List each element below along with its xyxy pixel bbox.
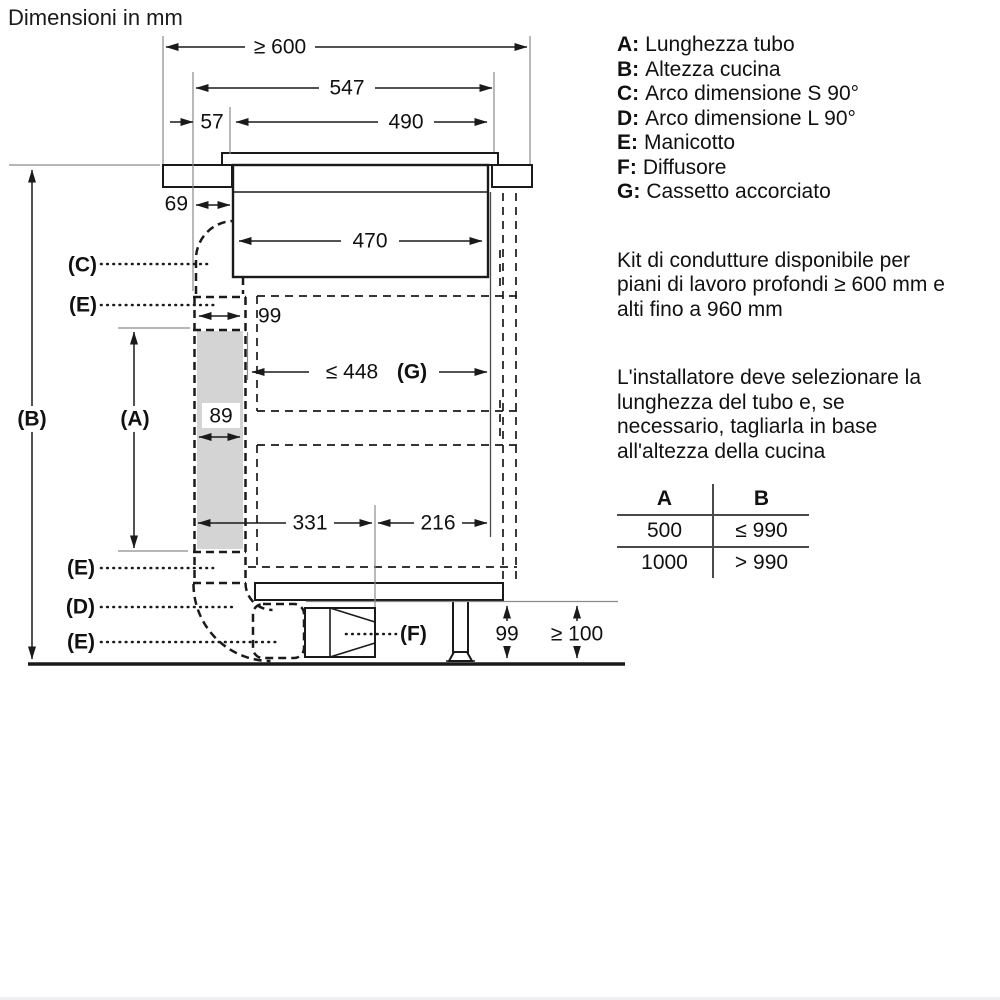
legend-item-e: E:Manicotto (617, 131, 982, 156)
dim-worktop-min-depth: ≥ 600 (254, 36, 306, 59)
legend-item-d: D:Arco dimensione L 90° (617, 107, 982, 132)
right-duct-channel (500, 193, 516, 583)
dim-duct-front-gap: 69 (165, 193, 188, 216)
dim-hob-inner-width: 470 (352, 230, 387, 253)
dim-front-offset: 57 (200, 111, 223, 134)
duct-tube (193, 297, 246, 583)
cabinet-bottom-shelf (255, 583, 503, 600)
dim-plinth-min: ≥ 100 (551, 623, 603, 646)
table-header-row: A B (617, 484, 809, 515)
note-installer: L'installatore deve selezionare la lungh… (617, 366, 982, 464)
part-label-e-bottom: (E) (67, 631, 95, 654)
part-label-a: (A) (120, 408, 149, 431)
dim-sleeve-top-width: 99 (258, 305, 281, 328)
dim-diffuser-height: 99 (495, 623, 518, 646)
table-row: 500 ≤ 990 (617, 515, 809, 547)
dim-hob-body-width: 490 (388, 111, 423, 134)
cabinet-leg (446, 600, 475, 661)
legend-item-g: G:Cassetto accorciato (617, 180, 982, 205)
part-label-e-top: (E) (69, 294, 97, 317)
legend-item-b: B:Altezza cucina (617, 58, 982, 83)
dim-hob-total-width: 547 (329, 77, 364, 100)
table-header-a: A (617, 484, 713, 515)
part-label-b: (B) (17, 408, 46, 431)
legend-item-a: A:Lunghezza tubo (617, 33, 982, 58)
legend-item-f: F:Diffusore (617, 156, 982, 181)
dim-duct-depth: 89 (209, 405, 232, 428)
note-duct-kit: Kit di condutture disponibile per piani … (617, 249, 982, 323)
info-panel: A:Lunghezza tubo B:Altezza cucina C:Arco… (617, 33, 982, 578)
part-label-d: (D) (66, 596, 95, 619)
screenshot-root: Dimensioni in mm (0, 0, 1000, 1000)
dim-drawer-max: ≤ 448 (326, 361, 378, 384)
dimension-text-backgrounds (11, 36, 614, 646)
tube-length-table: A B 500 ≤ 990 1000 > 990 (617, 484, 809, 578)
part-label-e-mid: (E) (67, 557, 95, 580)
legend: A:Lunghezza tubo B:Altezza cucina C:Arco… (617, 33, 982, 205)
table-row: 1000 > 990 (617, 547, 809, 578)
dim-front-depth: 216 (420, 512, 455, 535)
lower-cabinet-outline (248, 445, 517, 567)
diffuser (305, 608, 375, 657)
legend-item-c: C:Arco dimensione S 90° (617, 82, 982, 107)
hob (222, 153, 498, 277)
shortened-drawer-outline (257, 296, 517, 411)
table-header-b: B (713, 484, 809, 515)
dim-rear-depth: 331 (292, 512, 327, 535)
part-label-f: (F) (400, 623, 427, 646)
dim-drawer-ref: (G) (397, 361, 427, 384)
part-label-c: (C) (68, 254, 97, 277)
